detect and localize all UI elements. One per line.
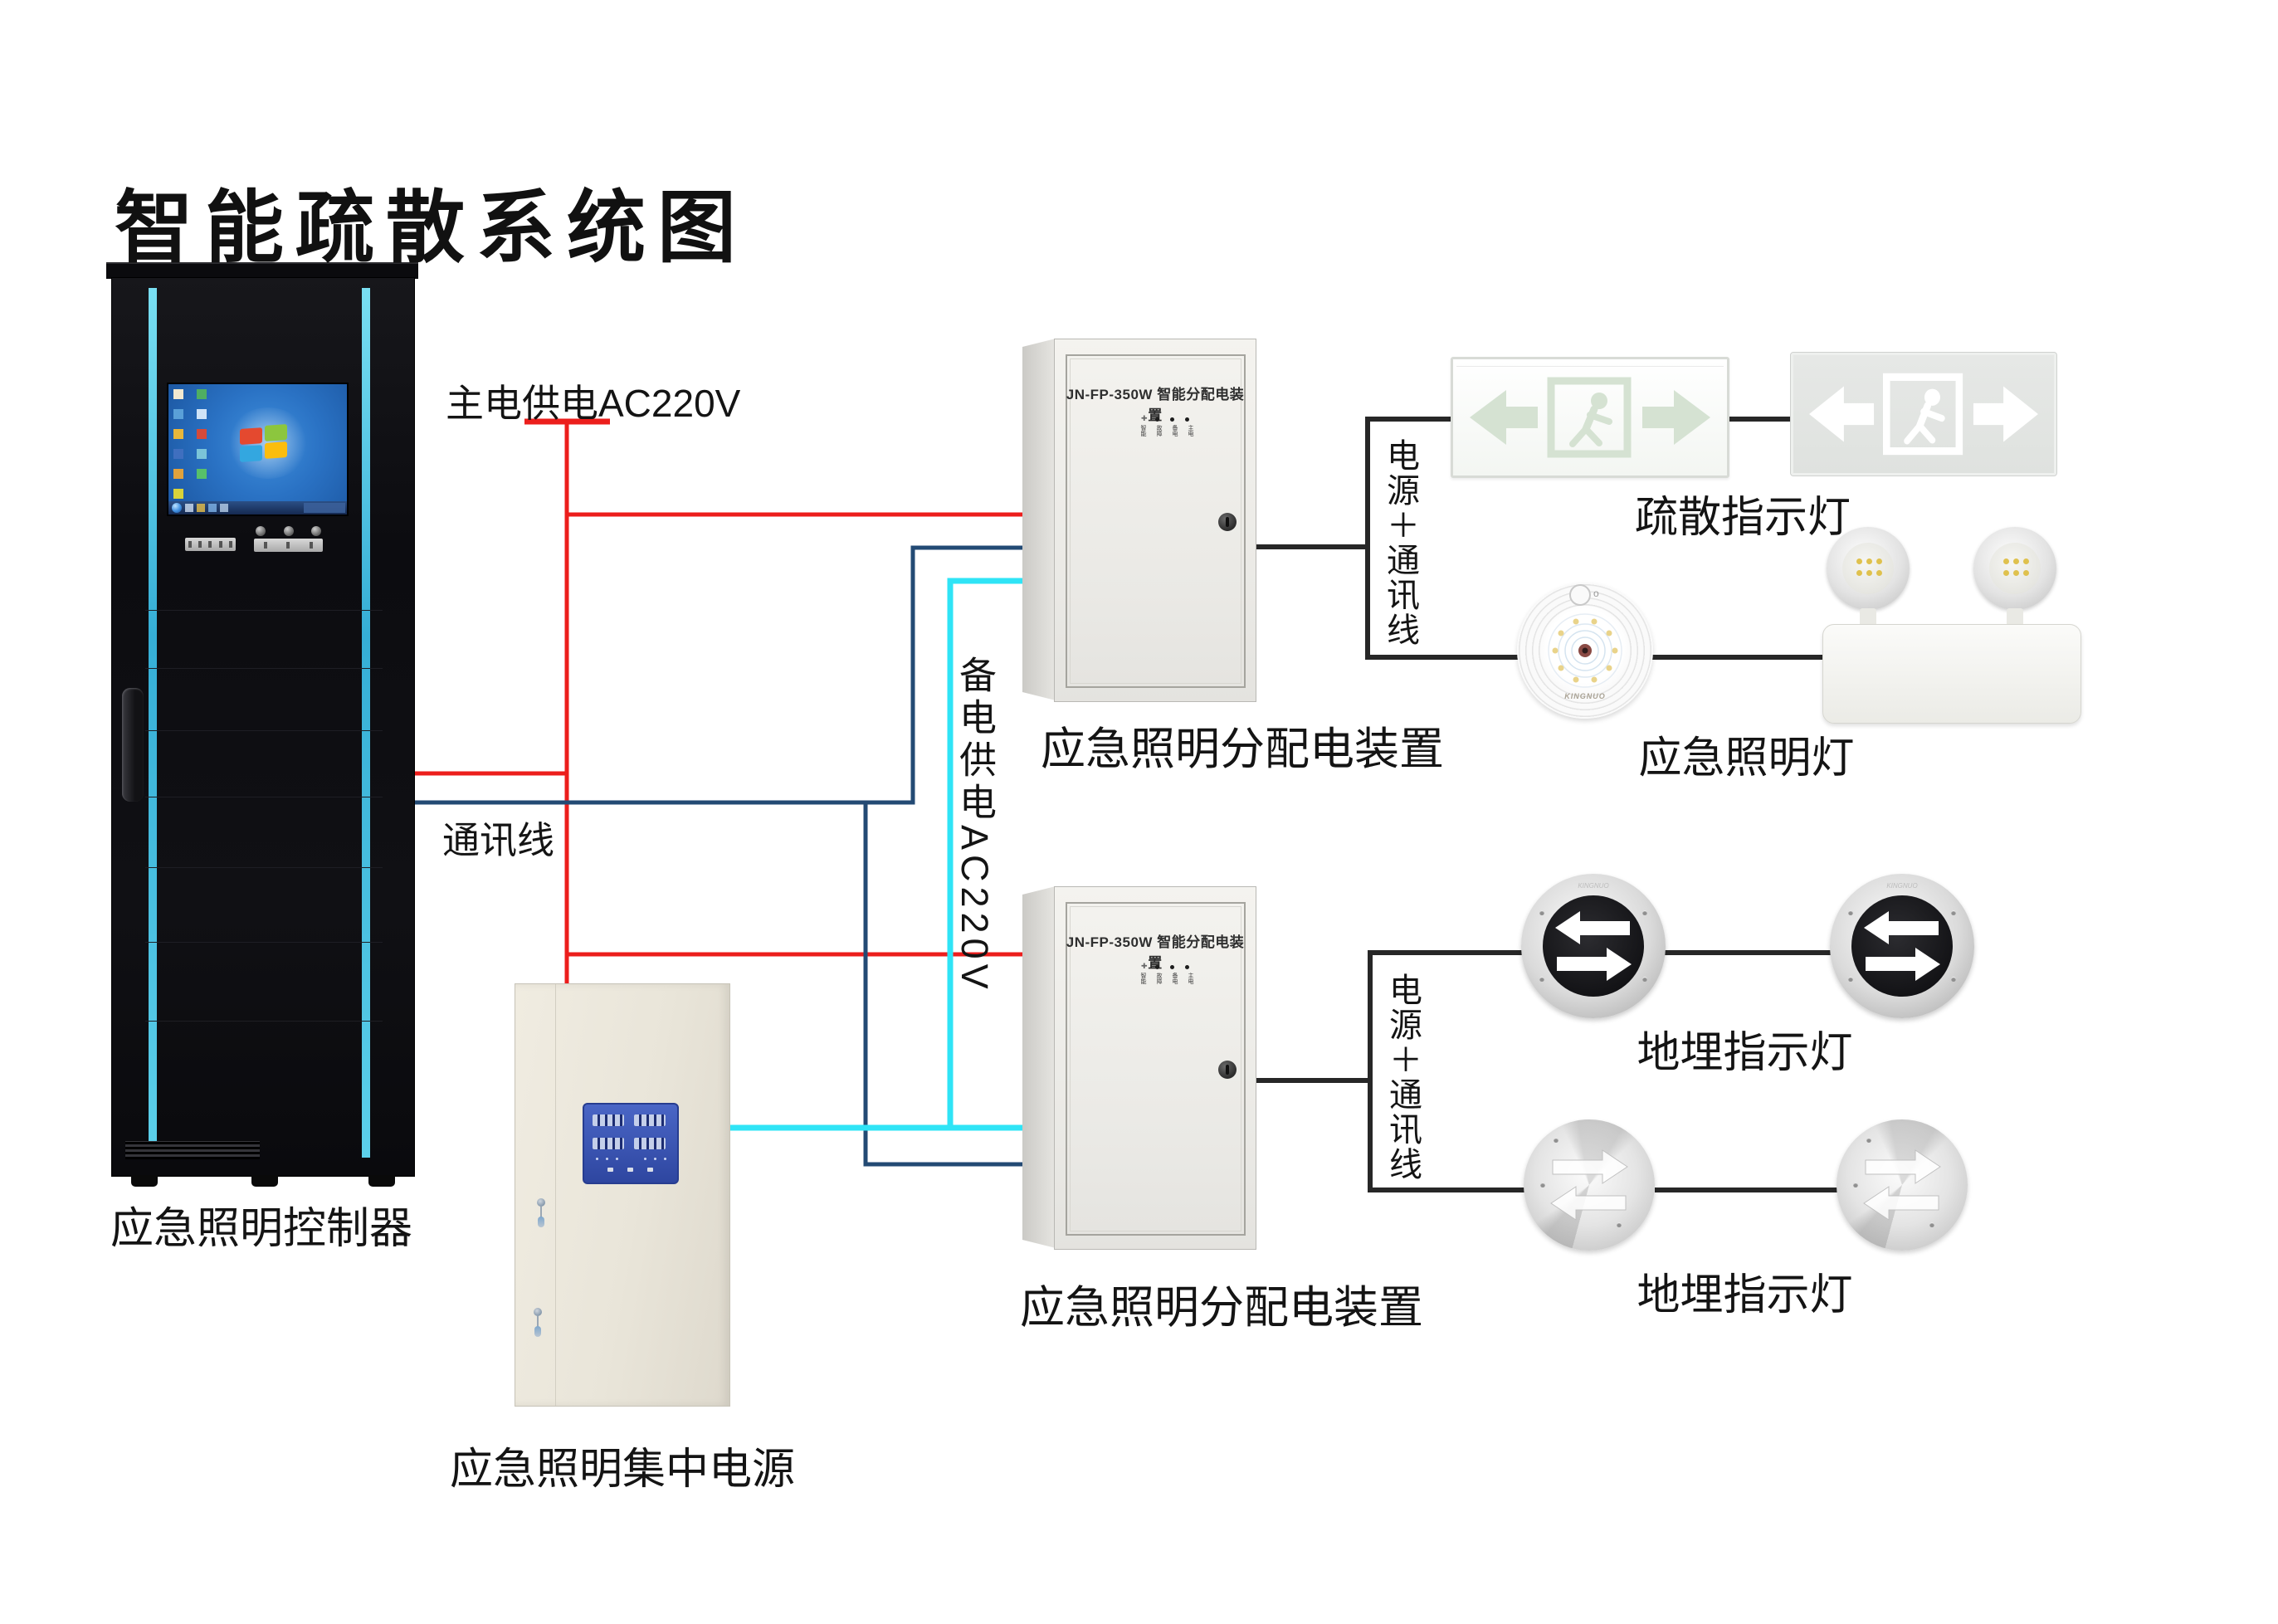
ground-indicator-light-4: [1837, 1119, 1968, 1251]
status-led-icon: [1170, 965, 1174, 969]
exit-sign-unlit: [1791, 353, 2056, 475]
button-strip-left[interactable]: [185, 538, 236, 551]
distribution-box-1: JN-FP-350W 智能分配电装置 ✚ 智能 故障 备电 主电: [1022, 339, 1255, 700]
status-led-icon: [1155, 417, 1159, 422]
ground-indicator-light-1: KINGNUO: [1521, 874, 1666, 1018]
exit-sign-lit: [1451, 357, 1729, 478]
rack-body: [111, 277, 415, 1177]
rack-accent-strip-right: [362, 288, 370, 1158]
ground-lights-row2-label: 地埋指示灯: [1635, 1260, 1855, 1322]
power-supply-control-panel[interactable]: [583, 1103, 679, 1184]
controller-touchscreen[interactable]: [167, 383, 349, 516]
door-lock-2-icon[interactable]: [534, 1308, 542, 1316]
status-led-icon: [1185, 417, 1189, 422]
double-arrow-icon: [1521, 874, 1666, 1018]
engraved-double-arrow-icon: [1524, 1119, 1655, 1251]
desktop-icons: [173, 389, 223, 501]
key-icon: [538, 1217, 544, 1227]
box1-lock-handle[interactable]: [1218, 513, 1237, 531]
power-comm-label-lower: 电源＋通讯线: [1378, 973, 1427, 1180]
status-led-icon: [1185, 965, 1189, 969]
round-ceiling-emergency-light: o KINGNUO: [1517, 583, 1653, 719]
twin-spot-emergency-light: [1822, 523, 2081, 722]
control-knob-1[interactable]: [256, 526, 266, 536]
main-power-wire-label: 主电供电AC220V: [446, 373, 728, 428]
status-led-icon: [1155, 965, 1159, 969]
taskbar: [168, 501, 347, 515]
control-knob-3[interactable]: [311, 526, 321, 536]
exit-signs-label: 疏散指示灯: [1631, 482, 1855, 544]
start-orb-icon[interactable]: [172, 503, 182, 513]
rack-door-handle[interactable]: [122, 688, 144, 802]
brand-text: KINGNUO: [1517, 692, 1653, 700]
central-power-supply-cabinet: [515, 983, 730, 1407]
ground-lights-row1-label: 地埋指示灯: [1635, 1017, 1855, 1080]
key-2-icon: [534, 1326, 541, 1337]
box2-label: 应急照明分配电装置: [1014, 1270, 1429, 1336]
comm-wire-to-box1: [410, 548, 1024, 802]
ground-indicator-light-2: KINGNUO: [1830, 874, 1974, 1018]
engraved-double-arrow-icon: [1837, 1119, 1968, 1251]
button-strip-right[interactable]: [254, 539, 323, 552]
box2-lock-handle[interactable]: [1218, 1061, 1237, 1079]
page-title: 智能疏散系统图: [115, 164, 748, 278]
system-tray: [304, 503, 345, 513]
emergency-lighting-controller-cabinet: [106, 262, 418, 1188]
test-button-icon[interactable]: [1569, 584, 1591, 606]
status-led-icon: [1170, 417, 1174, 422]
controller-label: 应急照明控制器: [79, 1193, 444, 1256]
windows-logo-icon: [240, 424, 290, 464]
lamp-head-right: [1973, 527, 2056, 610]
screw-icon: ✚: [1141, 962, 1148, 971]
emergency-lights-label: 应急照明灯: [1637, 723, 1856, 785]
power-comm-label-upper: 电源＋通讯线: [1376, 438, 1424, 646]
box1-label: 应急照明分配电装置: [1035, 712, 1450, 778]
comm-wire-label: 通讯线: [442, 810, 559, 864]
battery-body: [1822, 624, 2081, 724]
exit-pictogram-icon: [1793, 355, 2054, 473]
arrow-left-icon: [1809, 387, 1874, 442]
screw-icon: ✚: [1141, 414, 1148, 423]
distribution-box-2: JN-FP-350W 智能分配电装置 ✚ 智能 故障 备电 主电: [1022, 886, 1255, 1248]
rack-vent-grille: [125, 1141, 260, 1159]
control-knob-2[interactable]: [284, 526, 294, 536]
arrow-right-icon: [1642, 390, 1710, 445]
door-lock-icon[interactable]: [537, 1198, 545, 1207]
central-power-label: 应急照明集中电源: [444, 1434, 801, 1496]
taskbar-icons: [185, 503, 251, 513]
rack-accent-strip-left: [149, 288, 157, 1158]
arrow-right-icon: [1973, 387, 2038, 442]
exit-pictogram-icon: [1453, 359, 1727, 475]
backup-power-wire-label: 备电供电AC220V: [948, 656, 1002, 996]
double-arrow-icon: [1830, 874, 1974, 1018]
ground-indicator-light-3: [1524, 1119, 1655, 1251]
evacuation-system-diagram: 智能疏散系统图: [0, 0, 2278, 1624]
arrow-left-icon: [1470, 390, 1538, 445]
